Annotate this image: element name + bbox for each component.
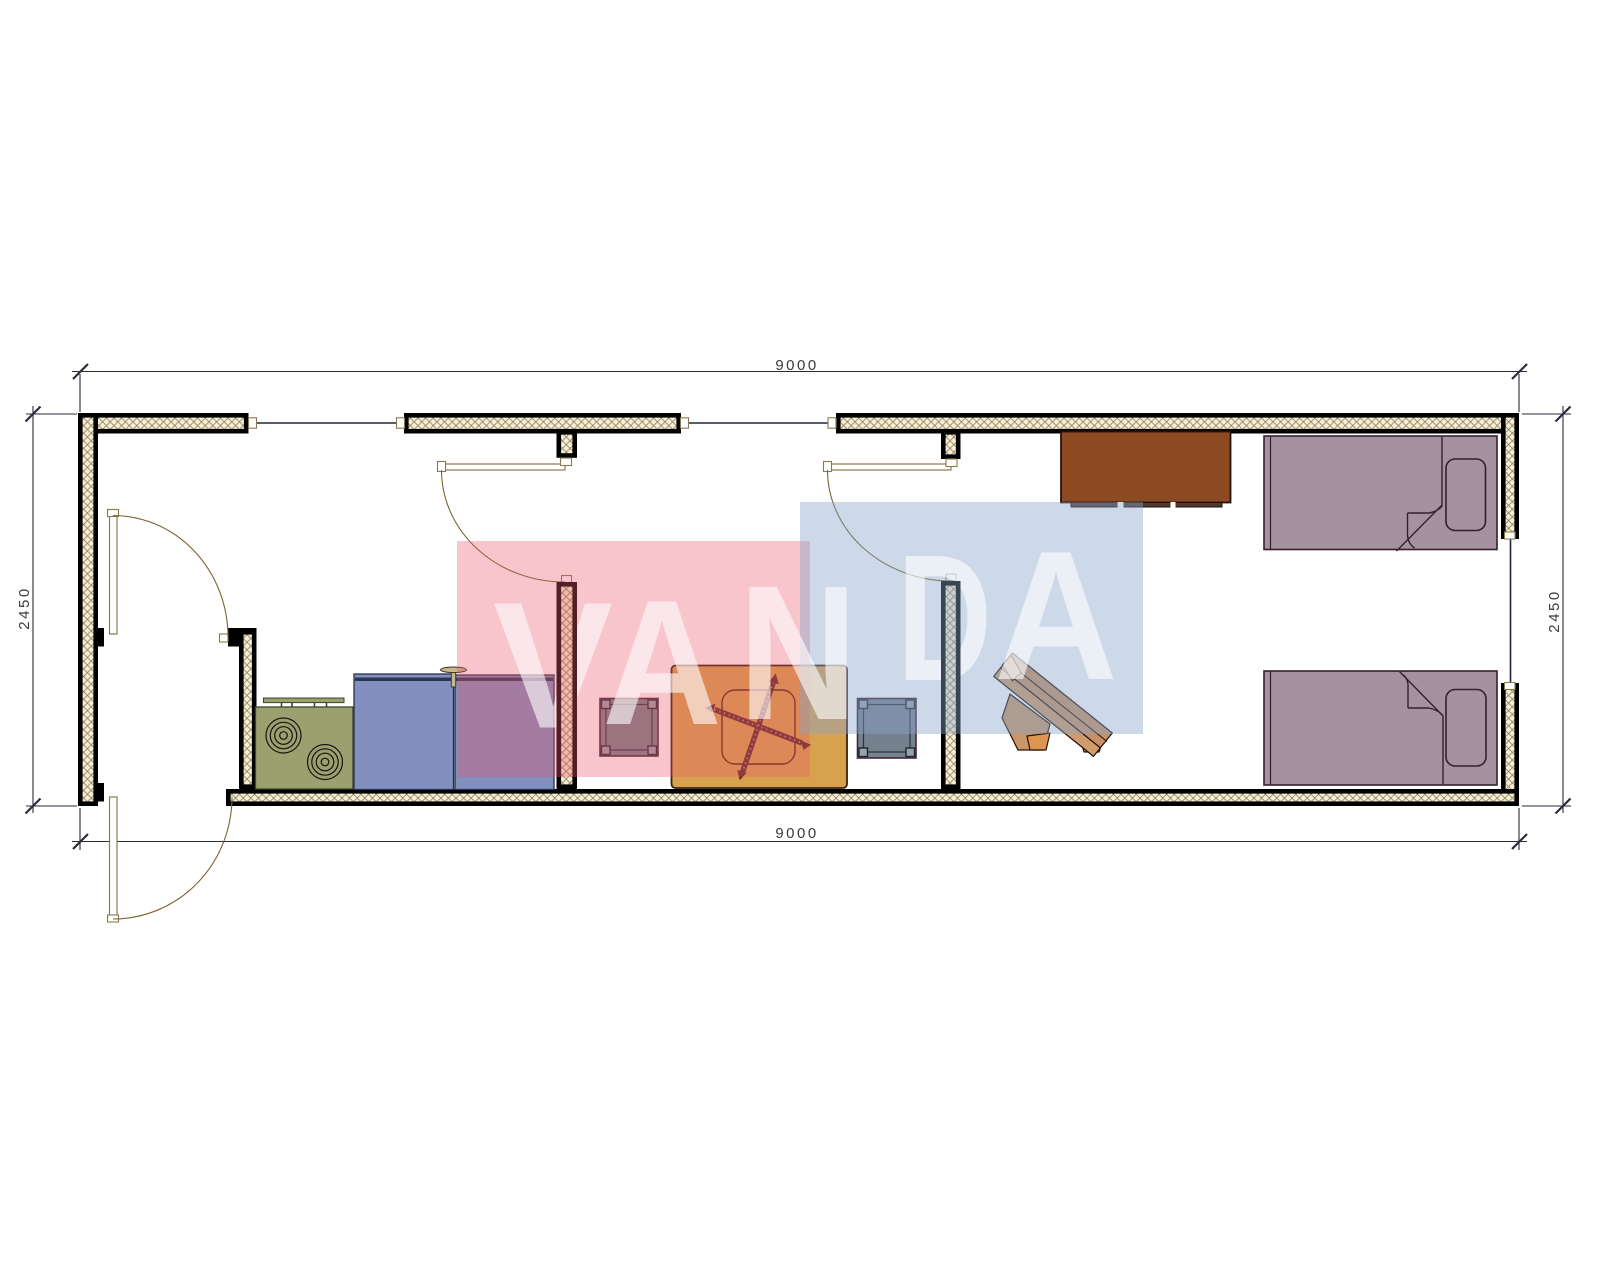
svg-text:9000: 9000 <box>775 825 818 842</box>
svg-text:V: V <box>493 566 613 767</box>
svg-text:2450: 2450 <box>16 586 33 629</box>
svg-text:A: A <box>602 563 722 762</box>
svg-text:2450: 2450 <box>1546 589 1563 632</box>
svg-text:A: A <box>994 512 1118 718</box>
svg-text:9000: 9000 <box>775 357 818 374</box>
svg-text:N: N <box>738 545 857 759</box>
